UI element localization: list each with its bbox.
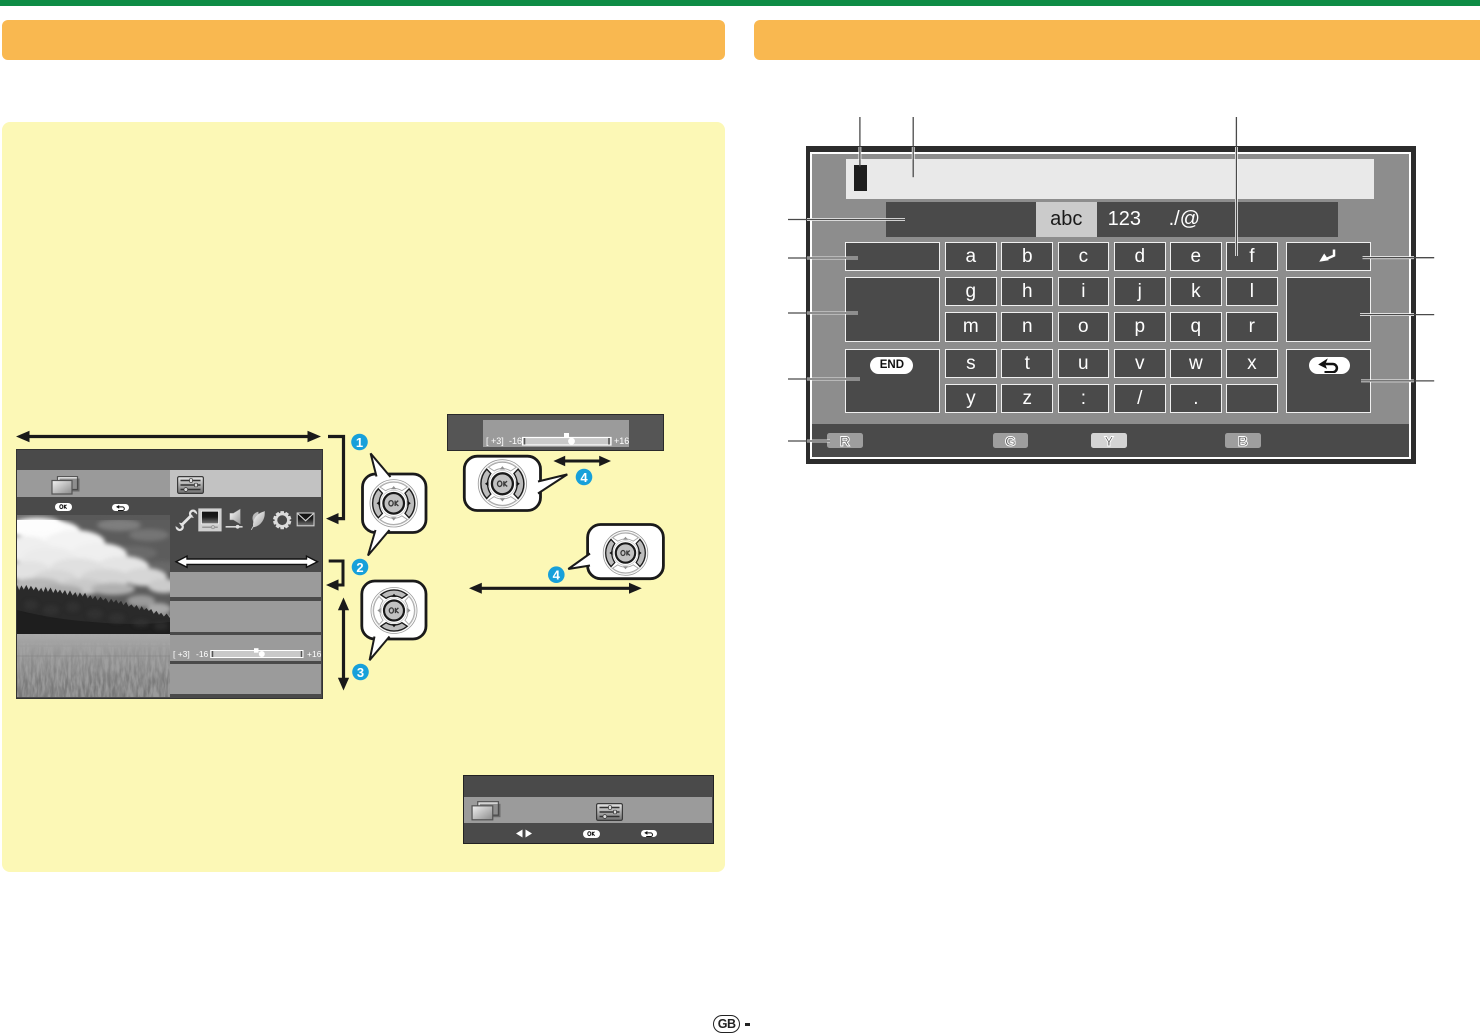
svg-text:[ +3]: [ +3]	[486, 436, 504, 446]
svg-text:-16: -16	[196, 649, 209, 659]
svg-text:-16: -16	[509, 436, 522, 446]
svg-text:+16: +16	[307, 649, 321, 659]
svg-text:+16: +16	[614, 436, 629, 446]
svg-text:[ +3]: [ +3]	[173, 649, 190, 659]
